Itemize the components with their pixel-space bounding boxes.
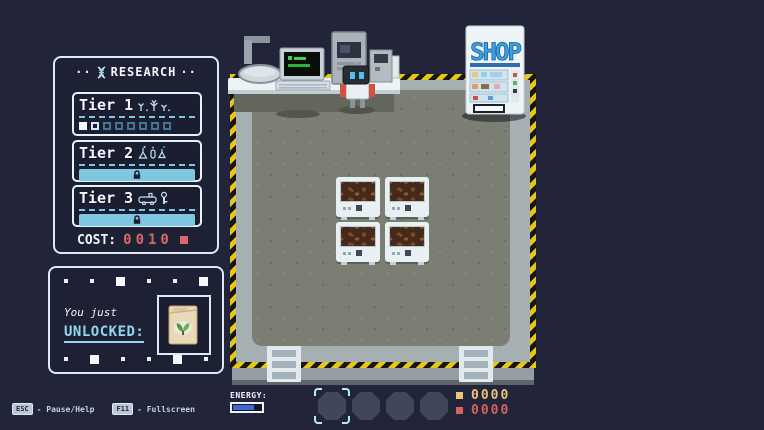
keycap: ESC xyxy=(12,403,33,415)
planter-dot xyxy=(392,252,395,255)
planter-box[interactable] xyxy=(385,222,429,262)
slot-octagon xyxy=(386,392,414,420)
decor-square xyxy=(90,279,94,283)
unlocked-line2: UNLOCKED: xyxy=(64,324,144,343)
decor-square xyxy=(121,357,125,361)
title-decor-left: ·· xyxy=(75,65,91,79)
cost-label: COST: xyxy=(77,233,116,248)
hotbar-slot-3[interactable] xyxy=(386,392,414,420)
resource-counter: 0000 xyxy=(456,404,510,417)
hotbar-slot-1[interactable] xyxy=(318,392,346,420)
tier-3-label: Tier 3 xyxy=(79,190,133,206)
resource-icon xyxy=(456,407,463,414)
shop-button-red[interactable] xyxy=(513,73,517,77)
round-table-top xyxy=(244,67,276,77)
planter-grid xyxy=(336,177,436,267)
resource-counter: 0000 xyxy=(456,389,510,402)
lab-workbench[interactable] xyxy=(228,26,400,120)
tier-2-locked-bar xyxy=(79,169,195,181)
planter-soil xyxy=(389,226,425,247)
keyboard-row xyxy=(279,84,327,86)
tier-divider xyxy=(79,209,195,211)
tier-1-head: Tier 1 xyxy=(79,96,195,114)
tier-divider xyxy=(79,164,195,166)
unlocked-line1: You just xyxy=(64,306,144,319)
research-progress-square xyxy=(103,122,111,130)
research-panel: ·· RESEARCH ·· Tier 1 xyxy=(53,56,219,254)
tier-1-progress xyxy=(79,121,195,131)
lock-icon xyxy=(132,215,142,225)
currency-icon xyxy=(180,236,188,244)
shop-button-dark[interactable] xyxy=(513,89,517,93)
unlocked-item-box[interactable] xyxy=(157,295,211,355)
decor-square xyxy=(173,279,177,283)
field-ramp-right xyxy=(459,346,493,382)
robot-eye xyxy=(359,72,364,79)
planter-box[interactable] xyxy=(385,177,429,217)
robot-eye xyxy=(350,72,355,79)
planter-dot xyxy=(348,207,351,210)
hotbar xyxy=(318,392,448,420)
robot-head[interactable] xyxy=(343,66,369,84)
energy-indicator: ENERGY: xyxy=(230,391,267,413)
research-title-row: ·· RESEARCH ·· xyxy=(55,65,217,79)
planter-front xyxy=(340,248,376,258)
decor-square xyxy=(199,277,208,286)
fabricator-window-glow xyxy=(340,45,350,53)
planter-soil xyxy=(389,181,425,202)
tier-2-head: Tier 2 xyxy=(79,144,195,162)
fabricator-vent xyxy=(337,62,361,65)
tier-2-button[interactable]: Tier 2 xyxy=(72,140,202,182)
shop-vending-machine[interactable]: SHOP xyxy=(458,20,530,124)
shop-item xyxy=(494,84,500,89)
energy-fill xyxy=(233,405,254,410)
research-progress-square xyxy=(139,122,147,130)
cost-value: 0010 xyxy=(123,232,173,248)
shop-item xyxy=(472,84,478,89)
research-progress-square xyxy=(79,122,87,130)
energy-bar xyxy=(230,402,264,413)
research-progress-square xyxy=(151,122,159,130)
tier-3-head: Tier 3 xyxy=(79,189,195,207)
unlocked-deco-bottom xyxy=(64,354,208,364)
planter-box[interactable] xyxy=(336,222,380,262)
planter-dot xyxy=(397,207,400,210)
shop-item xyxy=(481,84,489,89)
shop-item xyxy=(488,96,493,100)
planter-dot xyxy=(343,252,346,255)
resource-value: 0000 xyxy=(471,404,510,417)
floor-shadow xyxy=(276,110,320,118)
planter-soil xyxy=(340,181,376,202)
machines-icon xyxy=(137,191,171,205)
hotkey-hint: F11- Fullscreen xyxy=(112,403,194,415)
pipe-icon xyxy=(244,40,252,64)
tier-divider xyxy=(79,116,195,118)
hotbar-slot-4[interactable] xyxy=(420,392,448,420)
selection-corner xyxy=(342,388,350,396)
tier-1-button[interactable]: Tier 1 xyxy=(72,92,202,136)
analyzer-button xyxy=(375,67,380,71)
robot-body xyxy=(346,82,369,99)
tier-1-label: Tier 1 xyxy=(79,97,133,113)
tier-3-locked-bar xyxy=(79,214,195,226)
resource-counters: 00000000 xyxy=(456,389,510,417)
slot-octagon xyxy=(420,392,448,420)
robot-arm xyxy=(369,84,375,97)
planter-dot xyxy=(392,207,395,210)
decor-square xyxy=(147,279,151,283)
title-decor-right: ·· xyxy=(180,65,196,79)
selection-corner xyxy=(314,416,322,424)
tier-2-label: Tier 2 xyxy=(79,145,133,161)
planter-button xyxy=(405,205,411,211)
cost-row: COST: 0010 xyxy=(77,232,188,248)
shop-item xyxy=(490,72,502,77)
field-ramp-left xyxy=(267,346,301,382)
game-screen: SHOP ·· RESEARCH ·· xyxy=(0,0,764,430)
hotkey-hints: ESC- Pause/HelpF11- Fullscreen xyxy=(12,403,195,415)
planter-front xyxy=(389,203,425,213)
dna-icon xyxy=(96,66,107,79)
planter-dot xyxy=(343,207,346,210)
planter-soil xyxy=(340,226,376,247)
energy-label: ENERGY: xyxy=(230,391,267,400)
robot-shadow xyxy=(339,106,375,114)
shop-dispenser-slot[interactable] xyxy=(474,105,504,112)
decor-square xyxy=(173,355,182,364)
decor-square xyxy=(116,277,125,286)
terminal-line xyxy=(294,57,306,60)
decor-square xyxy=(64,279,68,283)
planter-box[interactable] xyxy=(336,177,380,217)
research-progress-square xyxy=(163,122,171,130)
shop-item xyxy=(472,72,478,77)
unlocked-text: You just UNLOCKED: xyxy=(64,306,144,343)
shop-sign: SHOP xyxy=(470,38,521,66)
research-progress-square xyxy=(115,122,123,130)
shop-button-green[interactable] xyxy=(513,81,517,85)
tier-3-button[interactable]: Tier 3 xyxy=(72,185,202,227)
planter-button xyxy=(356,205,362,211)
keycap: F11 xyxy=(112,403,133,415)
planter-front xyxy=(340,203,376,213)
seed-packet-icon xyxy=(167,303,201,347)
planter-dot xyxy=(397,252,400,255)
planter-front xyxy=(389,248,425,258)
research-progress-square xyxy=(91,122,99,130)
analyzer-screen xyxy=(374,54,388,63)
decor-square xyxy=(147,357,151,361)
planter-button xyxy=(356,250,362,256)
resource-icon xyxy=(456,392,463,399)
decor-square xyxy=(90,355,99,364)
selection-corner xyxy=(314,388,322,396)
keyboard-row xyxy=(279,87,327,89)
planter-dot xyxy=(348,252,351,255)
hotkey-hint: ESC- Pause/Help xyxy=(12,403,94,415)
hotkey-action: - Pause/Help xyxy=(37,405,95,414)
planter-button xyxy=(405,250,411,256)
robot-arm xyxy=(340,84,346,97)
chemistry-icon xyxy=(137,146,167,160)
unlocked-panel: You just UNLOCKED: xyxy=(48,266,224,374)
unlocked-deco-top xyxy=(64,276,208,286)
shop-sign-band xyxy=(470,63,520,67)
terminal-prompt xyxy=(288,56,292,60)
research-title: RESEARCH xyxy=(111,65,177,79)
shop-item xyxy=(481,72,487,77)
slot-octagon xyxy=(352,392,380,420)
decor-square xyxy=(204,357,208,361)
shop-item xyxy=(473,96,478,100)
plants-icon xyxy=(137,99,171,112)
selection-corner xyxy=(342,416,350,424)
terminal-line xyxy=(288,64,310,67)
lock-icon xyxy=(132,170,142,180)
hotkey-action: - Fullscreen xyxy=(137,405,195,414)
decor-square xyxy=(64,357,68,361)
resource-value: 0000 xyxy=(471,389,510,402)
hotbar-slot-2[interactable] xyxy=(352,392,380,420)
research-progress-square xyxy=(127,122,135,130)
